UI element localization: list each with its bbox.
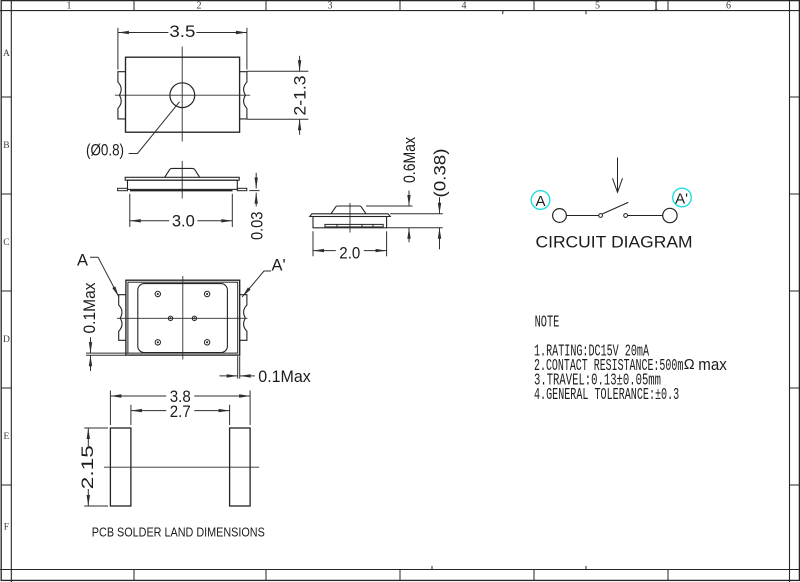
svg-text:0.6Max: 0.6Max bbox=[400, 137, 419, 183]
svg-text:6: 6 bbox=[726, 1, 731, 12]
svg-text:5: 5 bbox=[595, 1, 600, 12]
svg-text:PCB SOLDER LAND DIMENSIONS: PCB SOLDER LAND DIMENSIONS bbox=[92, 525, 265, 540]
svg-text:2.7: 2.7 bbox=[170, 402, 191, 421]
svg-text:A': A' bbox=[675, 190, 688, 207]
svg-text:NOTE: NOTE bbox=[535, 312, 560, 331]
svg-text:A: A bbox=[77, 252, 88, 270]
svg-text:(Ø0.8): (Ø0.8) bbox=[86, 141, 124, 160]
svg-text:D: D bbox=[3, 335, 10, 345]
svg-text:4.GENERAL TOLERANCE:±0.3: 4.GENERAL TOLERANCE:±0.3 bbox=[534, 385, 679, 404]
svg-text:2-1.3: 2-1.3 bbox=[291, 76, 310, 116]
svg-text:A: A bbox=[3, 49, 10, 59]
svg-text:F: F bbox=[4, 523, 9, 533]
svg-text:2.15: 2.15 bbox=[78, 445, 97, 489]
svg-text:3.0: 3.0 bbox=[172, 211, 195, 230]
svg-text:1: 1 bbox=[67, 1, 72, 12]
svg-text:Ω: Ω bbox=[684, 357, 695, 373]
svg-text:C: C bbox=[3, 238, 9, 248]
svg-text:B: B bbox=[3, 141, 9, 151]
svg-text:4: 4 bbox=[462, 1, 467, 12]
svg-text:3.5: 3.5 bbox=[169, 22, 195, 41]
svg-text:0.03: 0.03 bbox=[247, 212, 266, 241]
svg-text:max: max bbox=[698, 356, 727, 374]
svg-text:0.1Max: 0.1Max bbox=[80, 282, 99, 333]
svg-text:0.1Max: 0.1Max bbox=[258, 367, 311, 386]
svg-text:E: E bbox=[3, 432, 9, 442]
svg-text:A: A bbox=[535, 193, 545, 210]
svg-text:(0.38): (0.38) bbox=[431, 149, 450, 198]
svg-text:3: 3 bbox=[328, 1, 333, 12]
svg-text:I: I bbox=[654, 0, 658, 13]
svg-text:2.0: 2.0 bbox=[339, 243, 360, 262]
svg-text:A': A' bbox=[272, 257, 286, 275]
svg-text:CIRCUIT DIAGRAM: CIRCUIT DIAGRAM bbox=[536, 234, 693, 252]
svg-text:2: 2 bbox=[197, 1, 202, 12]
